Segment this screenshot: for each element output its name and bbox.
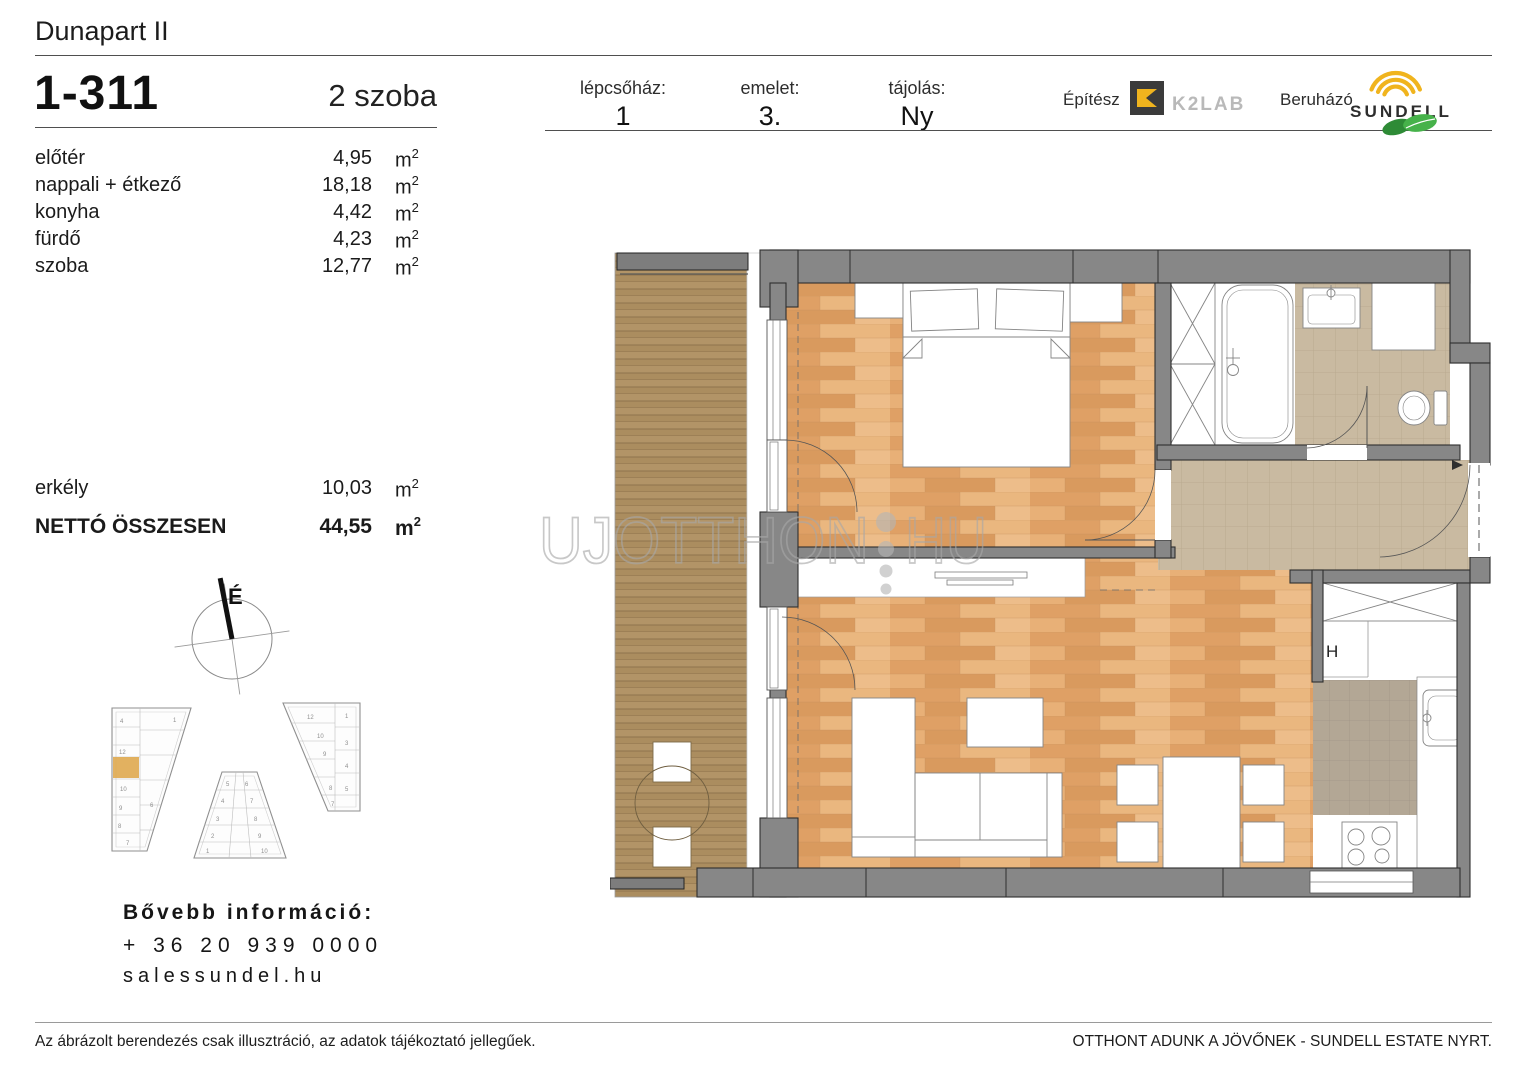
room-area: 4,42 <box>185 201 372 224</box>
developer-label: Beruházó <box>1280 90 1353 110</box>
divider-footer <box>35 1022 1492 1023</box>
svg-text:10: 10 <box>261 849 268 855</box>
field-floor-label: emelet: <box>695 78 845 99</box>
living-window <box>767 698 787 818</box>
site-building-middle: 5 6 4 7 3 8 2 9 1 10 <box>194 772 286 858</box>
coffee-table <box>967 698 1043 747</box>
washing-machine <box>1372 283 1435 350</box>
dining-chair <box>1117 765 1158 805</box>
room-area: 4,95 <box>185 147 372 170</box>
room-row: fürdő 4,23 m2 <box>35 228 445 255</box>
field-staircase-value: 1 <box>548 101 698 132</box>
svg-text:10: 10 <box>317 734 324 740</box>
room-area: 4,23 <box>185 228 372 251</box>
room-row: szoba 12,77 m2 <box>35 255 445 282</box>
tv-sideboard <box>798 558 1085 597</box>
architect-name: K2LAB <box>1172 94 1245 116</box>
wall-bedroom-right <box>1155 283 1171 470</box>
floor-plan-datasheet: { "document": { "project_title": "Dunapa… <box>0 0 1527 1080</box>
room-label: fürdő <box>35 228 81 251</box>
toilet <box>1398 391 1447 425</box>
k2lab-logo-icon <box>1130 81 1164 115</box>
net-total-unit: m2 <box>395 515 421 541</box>
bathtub <box>1222 285 1293 443</box>
svg-text:12: 12 <box>119 750 126 756</box>
north-label: É <box>228 584 243 609</box>
wardrobe <box>1170 283 1215 445</box>
fridge-label: H <box>1326 642 1338 661</box>
wall-kitchen-left <box>1312 570 1323 682</box>
contact-phone: + 36 20 939 0000 <box>123 934 383 958</box>
field-floor: emelet: 3. <box>695 78 845 132</box>
room-area: 18,18 <box>185 174 372 197</box>
balcony-area-unit: m2 <box>395 477 419 503</box>
pillow <box>910 289 978 331</box>
contact-heading: Bővebb információ: <box>123 901 383 925</box>
page-title: Dunapart II <box>35 16 169 47</box>
dining-chair <box>1243 765 1284 805</box>
nightstand <box>1070 283 1122 322</box>
highlighted-unit <box>113 757 139 778</box>
room-area-unit: m2 <box>395 255 419 281</box>
balcony-area: 10,03 <box>185 477 372 500</box>
balcony-wall-top <box>617 253 748 270</box>
net-total-area: 44,55 <box>185 515 372 539</box>
field-orientation: tájolás: Ny <box>842 78 992 132</box>
balcony-deck <box>610 253 770 897</box>
field-staircase-label: lépcsőház: <box>548 78 698 99</box>
wall-bedroom-living <box>798 547 1175 558</box>
net-total-row: NETTÓ ÖSSZESEN 44,55 m2 <box>35 515 445 542</box>
unit-type: 2 szoba <box>240 78 437 114</box>
balcony-wall-bottom <box>610 878 684 889</box>
kitchen-window <box>1310 871 1413 893</box>
room-row: nappali + étkező 18,18 m2 <box>35 174 445 201</box>
bedroom-window <box>767 320 787 440</box>
field-staircase: lépcsőház: 1 <box>548 78 698 132</box>
unit-id: 1-311 <box>34 66 159 121</box>
balcony-chair <box>653 742 691 782</box>
divider-unit <box>35 127 437 128</box>
balcony-row: erkély 10,03 m2 <box>35 477 445 504</box>
site-plan: 4 1 12 10 9 8 6 7 5 6 4 7 3 8 2 9 1 10 <box>95 695 375 890</box>
footer-slogan: OTTHONT ADUNK A JÖVŐNEK - SUNDELL ESTATE… <box>900 1033 1492 1051</box>
contact-website: salessundel.hu <box>123 965 383 988</box>
room-label: szoba <box>35 255 88 278</box>
site-building-left: 4 1 12 10 9 8 6 7 <box>112 708 191 851</box>
compass-icon: É <box>172 570 297 695</box>
kitchen-floor-tiles <box>1313 680 1417 815</box>
room-area-unit: m2 <box>395 147 419 173</box>
pillow <box>995 289 1063 331</box>
room-row: konyha 4,42 m2 <box>35 201 445 228</box>
sun-arcs-icon <box>1372 73 1420 94</box>
field-floor-value: 3. <box>695 101 845 132</box>
sundell-logo: SUNDELL <box>1348 58 1456 140</box>
room-area-unit: m2 <box>395 228 419 254</box>
room-area: 12,77 <box>185 255 372 278</box>
wall-top <box>770 250 1470 283</box>
tv-icon <box>935 572 1027 578</box>
bath-faucet-icon <box>1228 365 1239 376</box>
floor-plan-drawing: H <box>610 240 1500 900</box>
room-label: konyha <box>35 201 100 224</box>
dining-chair <box>1243 822 1284 862</box>
dining-table <box>1163 757 1240 868</box>
balcony-chair <box>653 827 691 867</box>
room-label: nappali + étkező <box>35 174 181 197</box>
room-area-unit: m2 <box>395 201 419 227</box>
stove <box>1342 822 1397 868</box>
contact-block: Bővebb információ: + 36 20 939 0000 sale… <box>123 901 383 988</box>
hallway-floor <box>1158 460 1470 570</box>
architect-label: Építész <box>1063 90 1120 110</box>
footer-disclaimer: Az ábrázolt berendezés csak illusztráció… <box>35 1033 536 1051</box>
dining-chair <box>1117 822 1158 862</box>
svg-text:10: 10 <box>120 787 127 793</box>
room-area-unit: m2 <box>395 174 419 200</box>
room-label: előtér <box>35 147 85 170</box>
site-building-right: 12 1 10 9 3 4 8 5 7 <box>283 703 360 811</box>
wall-kitchen-right <box>1457 583 1470 897</box>
room-row: előtér 4,95 m2 <box>35 147 445 174</box>
nightstand <box>855 283 903 318</box>
svg-text:12: 12 <box>307 715 314 721</box>
bed <box>903 283 1070 467</box>
divider-top <box>35 55 1492 56</box>
field-orientation-label: tájolás: <box>842 78 992 99</box>
developer-name: SUNDELL <box>1350 102 1452 121</box>
field-orientation-value: Ny <box>842 101 992 132</box>
balcony-label: erkély <box>35 477 88 500</box>
bathroom-sink <box>1303 285 1360 328</box>
